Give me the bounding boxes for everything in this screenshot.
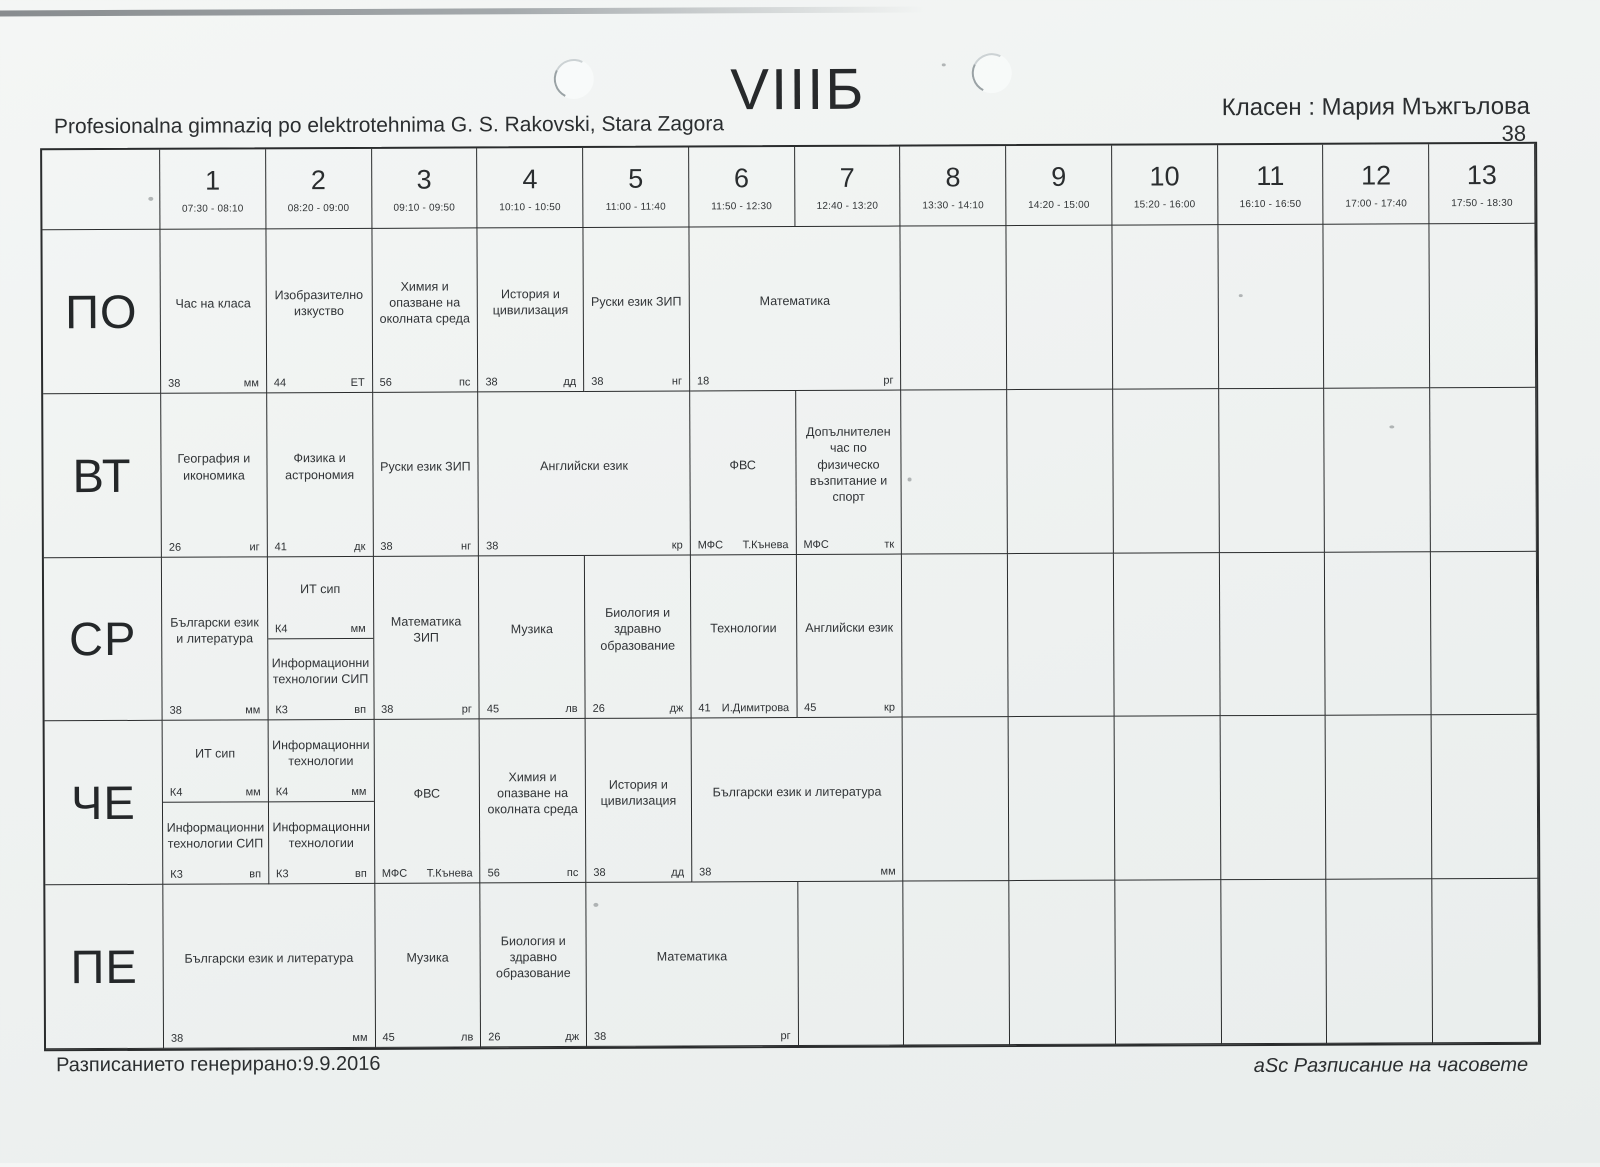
empty-cell bbox=[1220, 716, 1326, 880]
subject-name: Допълнителен час по физическо възпитание… bbox=[796, 390, 901, 538]
subject-name: История и цивилизация bbox=[586, 719, 691, 867]
lesson-cell: Английски език 38кр bbox=[478, 391, 690, 556]
lesson-cell: Музика 45лв bbox=[375, 884, 481, 1048]
subject-name: Музика bbox=[479, 556, 584, 704]
subject-name: Час на класа bbox=[160, 229, 265, 377]
lesson-cell: Химия и опазване на околната среда 56пс bbox=[480, 719, 586, 883]
room-code: 38 bbox=[168, 377, 180, 389]
room-code: К3 bbox=[276, 868, 289, 880]
period-header-12: 12 17:00 - 17:40 bbox=[1324, 144, 1430, 224]
lesson-cell: Математика ЗИП 38рг bbox=[373, 556, 479, 720]
period-number: 7 bbox=[840, 163, 855, 194]
period-time: 10:10 - 10:50 bbox=[499, 202, 561, 213]
teacher-code: нг bbox=[461, 540, 471, 552]
room-code: К4 bbox=[276, 787, 289, 799]
empty-cell bbox=[798, 882, 904, 1046]
teacher-code: тк bbox=[884, 538, 894, 550]
lesson-cell: ФВС МФСТ.Кънева bbox=[690, 391, 796, 555]
subject-name: Математика ЗИП bbox=[373, 556, 478, 704]
room-code: 45 bbox=[804, 702, 816, 714]
subject-name: Музика bbox=[375, 884, 480, 1032]
lesson-cell: Технологии 41И.Димитрова bbox=[691, 555, 797, 719]
subject-name: Български език и литература bbox=[163, 884, 374, 1033]
room-code: 38 bbox=[485, 376, 497, 388]
empty-cell bbox=[904, 881, 1010, 1045]
room-code: 56 bbox=[380, 377, 392, 389]
period-header-1: 1 07:30 - 08:10 bbox=[160, 149, 266, 229]
day-label-thursday: ЧЕ bbox=[45, 721, 164, 885]
lesson-cell: География и икономика 26иг bbox=[161, 393, 267, 557]
subject-name: История и цивилизация bbox=[478, 228, 583, 376]
room-code: 45 bbox=[382, 1032, 394, 1044]
period-header-3: 3 09:10 - 09:50 bbox=[372, 148, 478, 228]
subject-name: Технологии bbox=[691, 555, 796, 703]
period-time: 12:40 - 13:20 bbox=[817, 201, 879, 212]
teacher-code: рг bbox=[780, 1030, 790, 1042]
empty-cell bbox=[1114, 553, 1220, 717]
teacher-code: Т.Кънева bbox=[743, 539, 789, 551]
period-time: 11:00 - 11:40 bbox=[606, 202, 666, 213]
period-header-8: 8 13:30 - 14:10 bbox=[900, 146, 1006, 226]
empty-cell bbox=[1007, 389, 1113, 553]
empty-cell bbox=[901, 226, 1007, 390]
subject-name: Химия и опазване на околната среда bbox=[372, 228, 477, 376]
period-number: 4 bbox=[522, 164, 537, 195]
period-time: 15:20 - 16:00 bbox=[1134, 199, 1196, 210]
room-code: 18 bbox=[697, 375, 709, 387]
subject-name: Информационни технологии СИП bbox=[163, 803, 268, 869]
lesson-cell: Биология и здравно образование 26дж bbox=[585, 555, 691, 719]
subject-name: ФВС bbox=[374, 720, 479, 868]
asc-brand-note: aSc Разписание на часовете bbox=[1254, 1054, 1528, 1078]
period-number: 13 bbox=[1467, 160, 1497, 191]
room-code: МФС bbox=[382, 868, 407, 880]
class-teacher: Класен : Мария Мъжгълова bbox=[1222, 93, 1530, 122]
empty-cell bbox=[1324, 224, 1430, 388]
empty-cell bbox=[1432, 715, 1538, 879]
empty-cell bbox=[903, 717, 1009, 881]
room-code: 38 bbox=[381, 704, 393, 716]
period-number: 12 bbox=[1361, 160, 1391, 191]
teacher-code: нг bbox=[672, 375, 682, 387]
period-time: 13:30 - 14:10 bbox=[922, 200, 984, 211]
room-code: К3 bbox=[275, 705, 288, 717]
period-number: 6 bbox=[734, 163, 749, 194]
subject-name: География и икономика bbox=[161, 393, 266, 541]
period-header-6: 6 11:50 - 12:30 bbox=[689, 147, 795, 227]
subject-name: Химия и опазване на околната среда bbox=[480, 719, 585, 867]
split-lower: Информационни технологии К3вп bbox=[269, 802, 374, 883]
room-code: 41 bbox=[698, 703, 710, 715]
subject-name: Физика и астрономия bbox=[267, 393, 372, 541]
period-number: 8 bbox=[945, 162, 960, 193]
room-code: К4 bbox=[170, 787, 183, 799]
room-code: 45 bbox=[487, 704, 499, 716]
period-header-7: 7 12:40 - 13:20 bbox=[795, 147, 901, 227]
teacher-code: дж bbox=[565, 1031, 579, 1043]
day-label-monday: ПО bbox=[42, 230, 161, 394]
empty-cell bbox=[1326, 716, 1432, 880]
empty-cell bbox=[1009, 717, 1115, 881]
empty-cell bbox=[1115, 880, 1221, 1044]
empty-cell bbox=[1221, 880, 1327, 1044]
subject-name: Английски език bbox=[796, 554, 901, 702]
teacher-code: Т.Кънева bbox=[427, 868, 473, 880]
empty-cell bbox=[1327, 879, 1433, 1043]
period-number: 10 bbox=[1149, 161, 1179, 192]
lesson-cell: Допълнителен час по физическо възпитание… bbox=[796, 390, 902, 554]
empty-cell bbox=[1430, 388, 1536, 552]
period-header-10: 10 15:20 - 16:00 bbox=[1112, 145, 1218, 225]
scan-edge-shadow bbox=[0, 6, 926, 16]
subject-name: Информационни технологии bbox=[269, 802, 374, 868]
period-header-11: 11 16:10 - 16:50 bbox=[1218, 145, 1324, 225]
teacher-code: дк bbox=[354, 540, 365, 552]
split-lesson-cell: Информационни технологии К4мм Информацио… bbox=[268, 720, 374, 884]
empty-cell bbox=[1433, 879, 1539, 1043]
room-code: 56 bbox=[488, 868, 500, 880]
period-time: 07:30 - 08:10 bbox=[182, 203, 244, 214]
teacher-code: лв bbox=[565, 703, 577, 715]
empty-cell bbox=[1008, 553, 1114, 717]
lesson-cell: Руски език ЗИП 38нг bbox=[373, 392, 479, 556]
room-code: 38 bbox=[591, 376, 603, 388]
empty-cell bbox=[1431, 551, 1537, 715]
subject-name: Информационни технологии СИП bbox=[268, 638, 373, 704]
teacher-code: мм bbox=[245, 705, 260, 717]
lesson-cell: Химия и опазване на околната среда 56пс bbox=[372, 228, 478, 392]
room-code: К3 bbox=[170, 869, 183, 881]
teacher-code: вп bbox=[249, 869, 261, 881]
teacher-code: лв bbox=[461, 1031, 473, 1043]
empty-cell bbox=[902, 390, 1008, 554]
room-code: 38 bbox=[486, 540, 498, 552]
timetable-grid: 1 07:30 - 08:10 2 08:20 - 09:00 3 09:10 … bbox=[40, 142, 1541, 1052]
room-code: 26 bbox=[593, 703, 605, 715]
period-time: 09:10 - 09:50 bbox=[393, 203, 455, 214]
subject-name: Математика bbox=[689, 227, 900, 376]
teacher-code: пс bbox=[459, 376, 471, 388]
room-code: МФС bbox=[698, 539, 723, 551]
lesson-cell: Математика 38рг bbox=[586, 882, 798, 1047]
teacher-code: мм bbox=[351, 622, 366, 634]
teacher-code: пс bbox=[567, 867, 579, 879]
room-code: 38 bbox=[170, 705, 182, 717]
lesson-cell: История и цивилизация 38дд bbox=[478, 228, 584, 392]
empty-cell bbox=[1009, 881, 1115, 1045]
subject-name: ИТ сип bbox=[268, 556, 373, 622]
lesson-cell: Математика 18рг bbox=[689, 227, 901, 392]
teacher-code: ЕТ bbox=[351, 377, 365, 389]
school-name: Profesionalna gimnaziq po elektrotehnima… bbox=[54, 112, 724, 139]
room-code: 38 bbox=[593, 867, 605, 879]
teacher-code: вп bbox=[355, 868, 367, 880]
split-upper: ИТ сип К4мм bbox=[268, 556, 373, 638]
subject-name: Български език и литература bbox=[162, 557, 267, 705]
split-lower: Информационни технологии СИП К3вп bbox=[163, 803, 268, 884]
empty-cell bbox=[1325, 552, 1431, 716]
period-number: 11 bbox=[1256, 161, 1284, 192]
empty-cell bbox=[1325, 388, 1431, 552]
subject-name: Български език и литература bbox=[691, 718, 902, 867]
period-time: 17:00 - 17:40 bbox=[1345, 198, 1407, 209]
room-code: 41 bbox=[275, 541, 287, 553]
empty-cell bbox=[1219, 389, 1325, 553]
empty-cell bbox=[1113, 389, 1219, 553]
subject-name: Биология и здравно образование bbox=[481, 883, 586, 1031]
teacher-code: дж bbox=[670, 703, 684, 715]
room-code: К4 bbox=[275, 623, 288, 635]
split-lesson-cell: ИТ сип К4мм Информационни технологии СИП… bbox=[163, 721, 269, 885]
lesson-cell: Изобразително изкуство 44ЕТ bbox=[266, 229, 372, 393]
teacher-code: И.Димитрова bbox=[722, 702, 789, 714]
period-header-13: 13 17:50 - 18:30 bbox=[1429, 144, 1535, 224]
day-label-friday: ПЕ bbox=[45, 885, 164, 1049]
lesson-cell: ФВС МФСТ.Кънева bbox=[374, 720, 480, 884]
period-time: 08:20 - 09:00 bbox=[288, 203, 350, 214]
room-code: 38 bbox=[380, 540, 392, 552]
day-label-wednesday: СР bbox=[44, 557, 163, 721]
room-code: 38 bbox=[171, 1033, 183, 1045]
period-header-5: 5 11:00 - 11:40 bbox=[583, 147, 689, 227]
room-code: 38 bbox=[699, 867, 711, 879]
teacher-code: дд bbox=[671, 867, 684, 879]
lesson-cell: Музика 45лв bbox=[479, 556, 585, 720]
empty-cell bbox=[1218, 225, 1324, 389]
teacher-code: мм bbox=[880, 866, 895, 878]
lesson-cell: Български език и литература 38мм bbox=[162, 557, 268, 721]
empty-cell bbox=[1112, 225, 1218, 389]
empty-cell bbox=[1007, 226, 1113, 390]
corner-cell bbox=[42, 150, 160, 231]
period-number: 9 bbox=[1051, 162, 1066, 193]
lesson-cell: Час на класа 38мм bbox=[160, 229, 266, 393]
subject-name: Математика bbox=[586, 882, 797, 1031]
period-number: 2 bbox=[311, 165, 326, 196]
teacher-code: мм bbox=[244, 377, 259, 389]
lesson-cell: Биология и здравно образование 26дж bbox=[481, 883, 587, 1047]
period-time: 11:50 - 12:30 bbox=[711, 201, 772, 212]
lesson-cell: Руски език ЗИП 38нг bbox=[584, 227, 690, 391]
split-upper: Информационни технологии К4мм bbox=[268, 720, 373, 802]
period-header-2: 2 08:20 - 09:00 bbox=[266, 149, 372, 229]
subject-name: Биология и здравно образование bbox=[585, 555, 690, 703]
scanned-sheet: VIIIБ Profesionalna gimnaziq po elektrot… bbox=[0, 0, 1600, 1166]
room-code: 26 bbox=[488, 1031, 500, 1043]
lesson-cell: Български език и литература 38мм bbox=[163, 884, 375, 1049]
subject-name: Информационни технологии bbox=[268, 720, 373, 786]
lesson-cell: Английски език 45кр bbox=[796, 554, 902, 718]
room-code: 26 bbox=[169, 541, 181, 553]
teacher-code: рг bbox=[462, 704, 472, 716]
subject-name: ФВС bbox=[690, 391, 795, 539]
empty-cell bbox=[1115, 717, 1221, 881]
teacher-code: кр bbox=[884, 702, 895, 714]
period-number: 3 bbox=[417, 165, 432, 196]
teacher-code: дд bbox=[563, 376, 576, 388]
teacher-code: рг bbox=[883, 374, 893, 386]
subject-name: Руски език ЗИП bbox=[373, 392, 478, 540]
split-lower: Информационни технологии СИП К3вп bbox=[268, 638, 373, 719]
subject-name: Изобразително изкуство bbox=[266, 229, 371, 377]
room-code: 44 bbox=[274, 377, 286, 389]
period-header-9: 9 14:20 - 15:00 bbox=[1006, 146, 1112, 226]
generated-note: Разписанието генерирано:9.9.2016 bbox=[56, 1053, 381, 1077]
empty-cell bbox=[1220, 552, 1326, 716]
period-number: 1 bbox=[205, 166, 220, 197]
room-code: МФС bbox=[803, 538, 828, 550]
split-upper: ИТ сип К4мм bbox=[163, 721, 268, 803]
day-label-tuesday: ВТ bbox=[43, 394, 162, 558]
teacher-code: мм bbox=[352, 1032, 367, 1044]
lesson-cell: Български език и литература 38мм bbox=[691, 718, 903, 883]
teacher-code: мм bbox=[351, 786, 366, 798]
teacher-code: иг bbox=[249, 541, 259, 553]
period-time: 17:50 - 18:30 bbox=[1451, 198, 1513, 209]
subject-name: Руски език ЗИП bbox=[584, 227, 689, 375]
period-number: 5 bbox=[628, 164, 643, 195]
teacher-code: кр bbox=[672, 539, 683, 551]
lesson-cell: История и цивилизация 38дд bbox=[586, 719, 692, 883]
period-time: 16:10 - 16:50 bbox=[1240, 199, 1302, 210]
subject-name: Английски език bbox=[478, 391, 689, 540]
split-lesson-cell: ИТ сип К4мм Информационни технологии СИП… bbox=[268, 556, 374, 720]
subject-name: ИТ сип bbox=[163, 721, 268, 787]
teacher-code: мм bbox=[246, 787, 261, 799]
period-time: 14:20 - 15:00 bbox=[1028, 200, 1090, 211]
empty-cell bbox=[902, 554, 1008, 718]
empty-cell bbox=[1430, 224, 1536, 388]
period-header-4: 4 10:10 - 10:50 bbox=[477, 148, 583, 228]
teacher-code: вп bbox=[354, 704, 366, 716]
lesson-cell: Физика и астрономия 41дк bbox=[267, 393, 373, 557]
room-code: 38 bbox=[594, 1031, 606, 1043]
